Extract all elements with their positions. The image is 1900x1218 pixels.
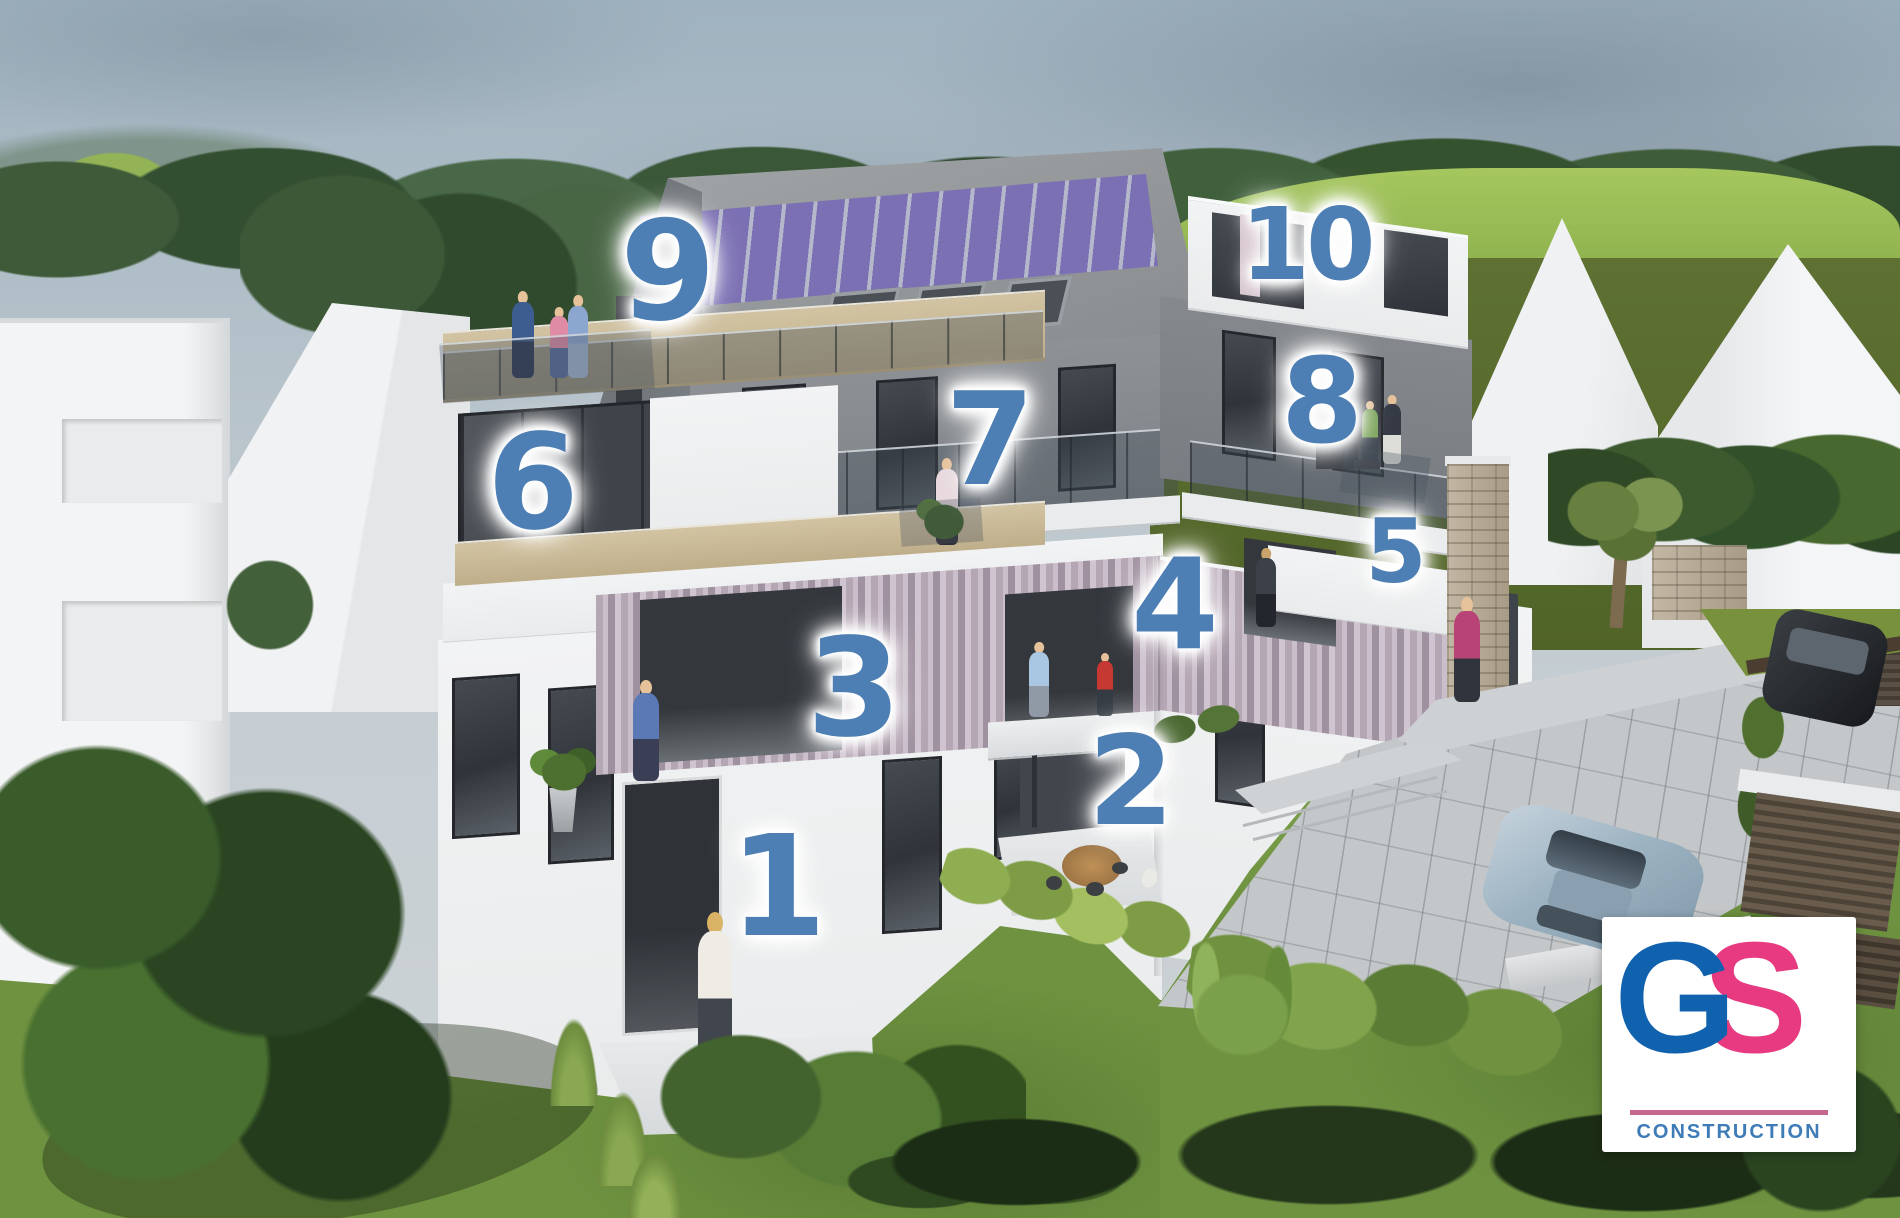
person-figure [631, 680, 661, 780]
developer-logo: S G CONSTRUCTION [1602, 917, 1856, 1152]
unit10-window [1384, 229, 1448, 316]
unit-number-label-7: 7 [945, 377, 1034, 505]
olive-tree-canopy [1548, 448, 1706, 574]
unit-number-label-1: 1 [729, 818, 826, 958]
logo-rule [1630, 1110, 1828, 1115]
architectural-rendering: 1 2 3 4 5 6 7 8 9 10 S G CONSTRUCTION [0, 0, 1900, 1218]
flowering-bush [0, 664, 486, 1218]
potted-plant [528, 738, 600, 800]
unit-number-label-10: 10 [1240, 195, 1371, 295]
logo-wordmark: CONSTRUCTION [1602, 1121, 1856, 1144]
unit-number-label-6: 6 [487, 417, 579, 549]
garden-chair [1112, 862, 1128, 874]
unit-number-label-3: 3 [807, 621, 902, 757]
attic-door [1222, 330, 1276, 462]
person-figure [1254, 548, 1278, 626]
person-figure [1095, 653, 1115, 715]
garden-chair [1046, 876, 1062, 890]
person-figure [1452, 597, 1482, 701]
unit-number-label-2: 2 [1088, 720, 1174, 844]
unit-number-label-4: 4 [1131, 542, 1219, 668]
person-figure [1027, 642, 1051, 716]
tropical-plant [1152, 920, 1332, 1092]
garden-chair [1086, 882, 1104, 896]
logo-letter-g: G [1614, 919, 1737, 1077]
unit-number-label-9: 9 [620, 203, 716, 341]
unit-number-label-8: 8 [1281, 342, 1363, 460]
unit-number-label-5: 5 [1365, 508, 1426, 596]
